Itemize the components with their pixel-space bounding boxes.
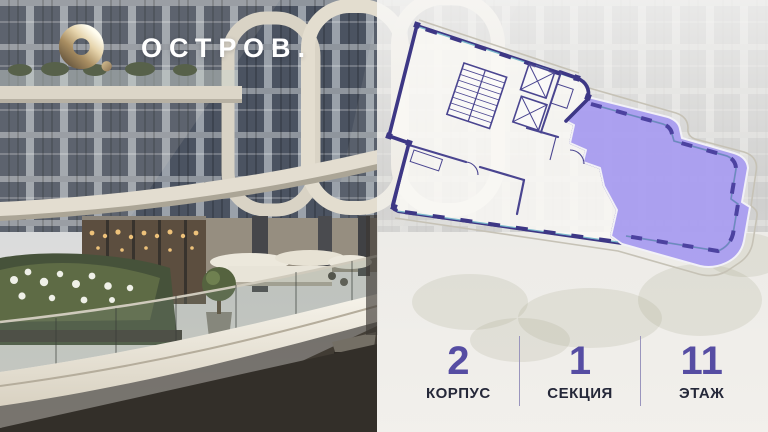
logo-mark-icon: [58, 22, 116, 75]
unit-stats: 2 КОРПУС 1 СЕКЦИЯ 11 ЭТАЖ: [398, 336, 762, 406]
brand-name: ОСТРОВ.: [141, 35, 312, 62]
stat-value: 2: [447, 341, 469, 381]
stat-label: ЭТАЖ: [679, 385, 724, 402]
stat-section: 1 СЕКЦИЯ: [520, 341, 641, 402]
stat-building: 2 КОРПУС: [398, 341, 519, 402]
brand-logo: ОСТРОВ.: [58, 22, 312, 75]
stat-value: 1: [569, 341, 591, 381]
stat-floor: 11 ЭТАЖ: [641, 341, 762, 402]
stat-value: 11: [681, 341, 723, 381]
stat-label: СЕКЦИЯ: [547, 385, 613, 402]
poster: ОСТРОВ. 2 КОРПУС 1 СЕКЦИЯ 11 ЭТАЖ: [0, 0, 768, 432]
stat-label: КОРПУС: [426, 385, 491, 402]
